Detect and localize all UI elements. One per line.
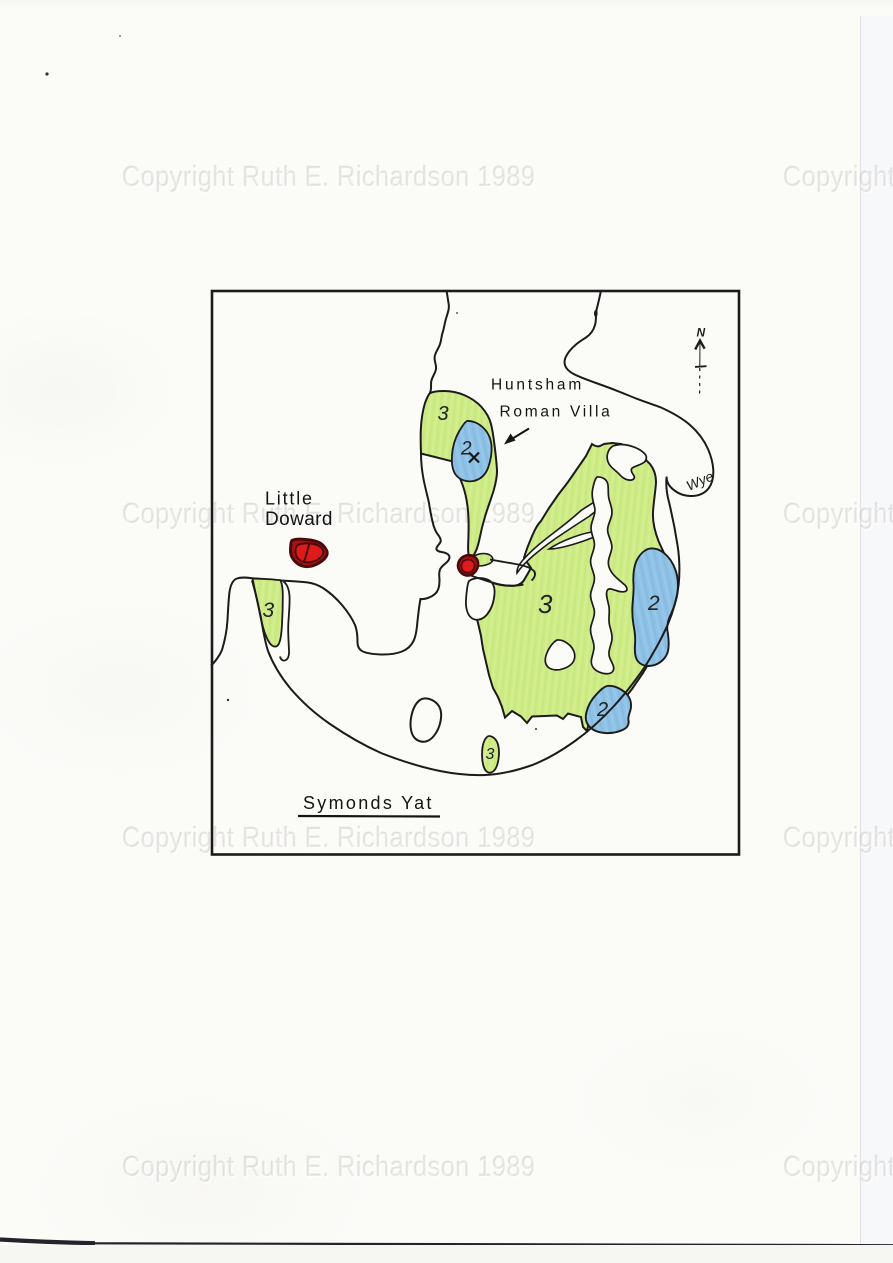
svg-text:N: N (697, 326, 706, 340)
svg-text:3: 3 (538, 589, 553, 619)
svg-text:2: 2 (647, 592, 660, 615)
svg-text:3: 3 (486, 746, 495, 763)
svg-text:Doward: Doward (265, 509, 333, 530)
svg-text:Huntsham: Huntsham (491, 377, 584, 394)
svg-text:2: 2 (460, 439, 472, 460)
svg-text:3: 3 (263, 599, 275, 622)
svg-text:Roman Villa: Roman Villa (500, 404, 613, 421)
svg-text:Little: Little (265, 489, 314, 509)
svg-text:Wye: Wye (684, 468, 716, 494)
svg-text:3: 3 (438, 403, 449, 425)
svg-text:Symonds Yat: Symonds Yat (303, 793, 434, 813)
svg-text:2: 2 (596, 699, 608, 721)
